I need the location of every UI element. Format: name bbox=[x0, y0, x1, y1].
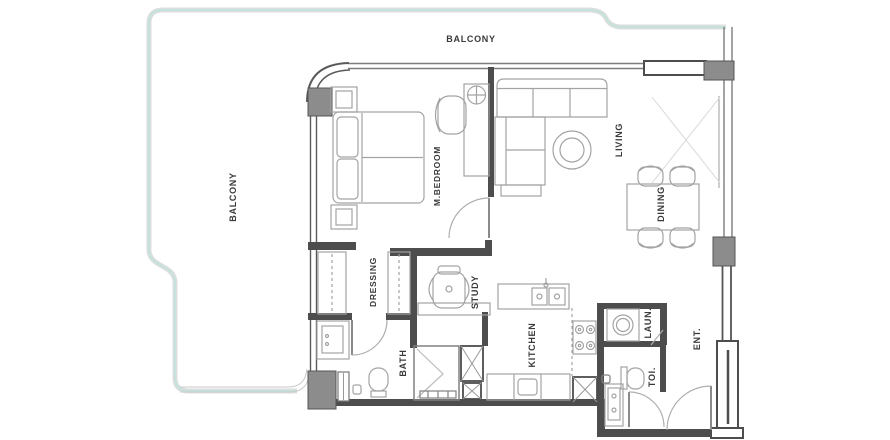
column-bottom-left bbox=[308, 371, 336, 409]
room-label-toilet: TOI. bbox=[647, 367, 657, 387]
wall-dressing-divider bbox=[410, 250, 417, 348]
washing-machine bbox=[607, 309, 639, 341]
bedroom-chair bbox=[436, 96, 467, 134]
kitchen-fixtures bbox=[487, 278, 596, 400]
room-label-balcony-left: BALCONY bbox=[228, 172, 238, 221]
wall-entrance-base bbox=[711, 428, 743, 438]
column-top-left bbox=[308, 88, 332, 116]
room-label-living: LIVING bbox=[614, 123, 624, 157]
wall-hall-step bbox=[485, 240, 492, 250]
door-guest-toilet bbox=[629, 392, 664, 427]
laundry-toilet-fixtures bbox=[602, 309, 644, 426]
shower-enclosure bbox=[414, 346, 459, 400]
wall-laundry-right bbox=[660, 303, 667, 345]
door-bedroom bbox=[449, 198, 489, 238]
bidet-sprayer bbox=[353, 385, 361, 394]
sofa-ottoman bbox=[501, 185, 541, 196]
room-label-bath: BATH bbox=[398, 349, 408, 376]
column-right-mid bbox=[713, 237, 735, 266]
toilet-wc bbox=[369, 368, 388, 397]
room-label-study: STUDY bbox=[470, 275, 480, 309]
base-cabinets bbox=[487, 374, 570, 400]
nightstand-top bbox=[331, 87, 357, 112]
bath-vanity-sink bbox=[317, 321, 349, 359]
living-furniture bbox=[495, 79, 607, 196]
door-bath bbox=[352, 320, 387, 355]
column-top-right bbox=[704, 61, 734, 80]
room-labels: BALCONY BALCONY M.BEDROOM LIVING DINING … bbox=[228, 34, 702, 387]
pillow-1 bbox=[337, 117, 358, 157]
dining-chair-bottom-right bbox=[670, 228, 695, 248]
dining-chair-top-right bbox=[670, 166, 695, 186]
floor-plan-svg: BALCONY BALCONY M.BEDROOM LIVING DINING … bbox=[0, 0, 890, 440]
dining-chair-top-left bbox=[638, 166, 663, 186]
wall-laundry-top bbox=[597, 303, 667, 309]
wall-toilet-right bbox=[660, 345, 666, 392]
room-label-laundry: LAUN. bbox=[643, 308, 653, 339]
wall-lintel-top bbox=[644, 61, 706, 75]
l-shaped-sofa bbox=[495, 79, 607, 196]
guest-toilet-wc bbox=[621, 367, 644, 389]
dressing-table-with-mirror bbox=[464, 84, 489, 176]
room-label-master-bedroom: M.BEDROOM bbox=[432, 146, 442, 206]
dining-chair-bottom-left bbox=[638, 228, 663, 248]
kitchen-island-sink bbox=[498, 278, 569, 309]
wall-bottom-right bbox=[597, 429, 715, 437]
room-label-kitchen: KITCHEN bbox=[527, 323, 537, 368]
columns bbox=[308, 61, 735, 409]
room-label-balcony-top: BALCONY bbox=[446, 34, 495, 44]
room-label-dressing: DRESSING bbox=[368, 257, 378, 307]
floor-plan-page: BALCONY BALCONY M.BEDROOM LIVING DINING … bbox=[0, 0, 890, 440]
room-label-dining: DINING bbox=[656, 186, 666, 222]
nightstand-bottom bbox=[331, 205, 357, 229]
duct-shaft-study bbox=[461, 346, 483, 399]
bedroom-furniture bbox=[331, 84, 489, 229]
wall-laundry-left bbox=[597, 303, 604, 399]
room-label-entrance: ENT. bbox=[692, 328, 702, 350]
dressing-furniture bbox=[318, 252, 410, 314]
double-bed bbox=[333, 112, 424, 203]
duct-shaft-kitchen bbox=[573, 377, 597, 402]
guest-vanity bbox=[605, 384, 623, 426]
desk-chair bbox=[429, 266, 469, 308]
wall-study-kitchen bbox=[482, 312, 488, 346]
door-entrance bbox=[667, 386, 711, 430]
pillow-2 bbox=[337, 159, 358, 199]
cooktop-4-burner bbox=[573, 321, 596, 354]
wall-bedroom-south bbox=[308, 242, 356, 250]
balcony-floor-line bbox=[180, 369, 307, 387]
round-coffee-table bbox=[553, 131, 591, 169]
